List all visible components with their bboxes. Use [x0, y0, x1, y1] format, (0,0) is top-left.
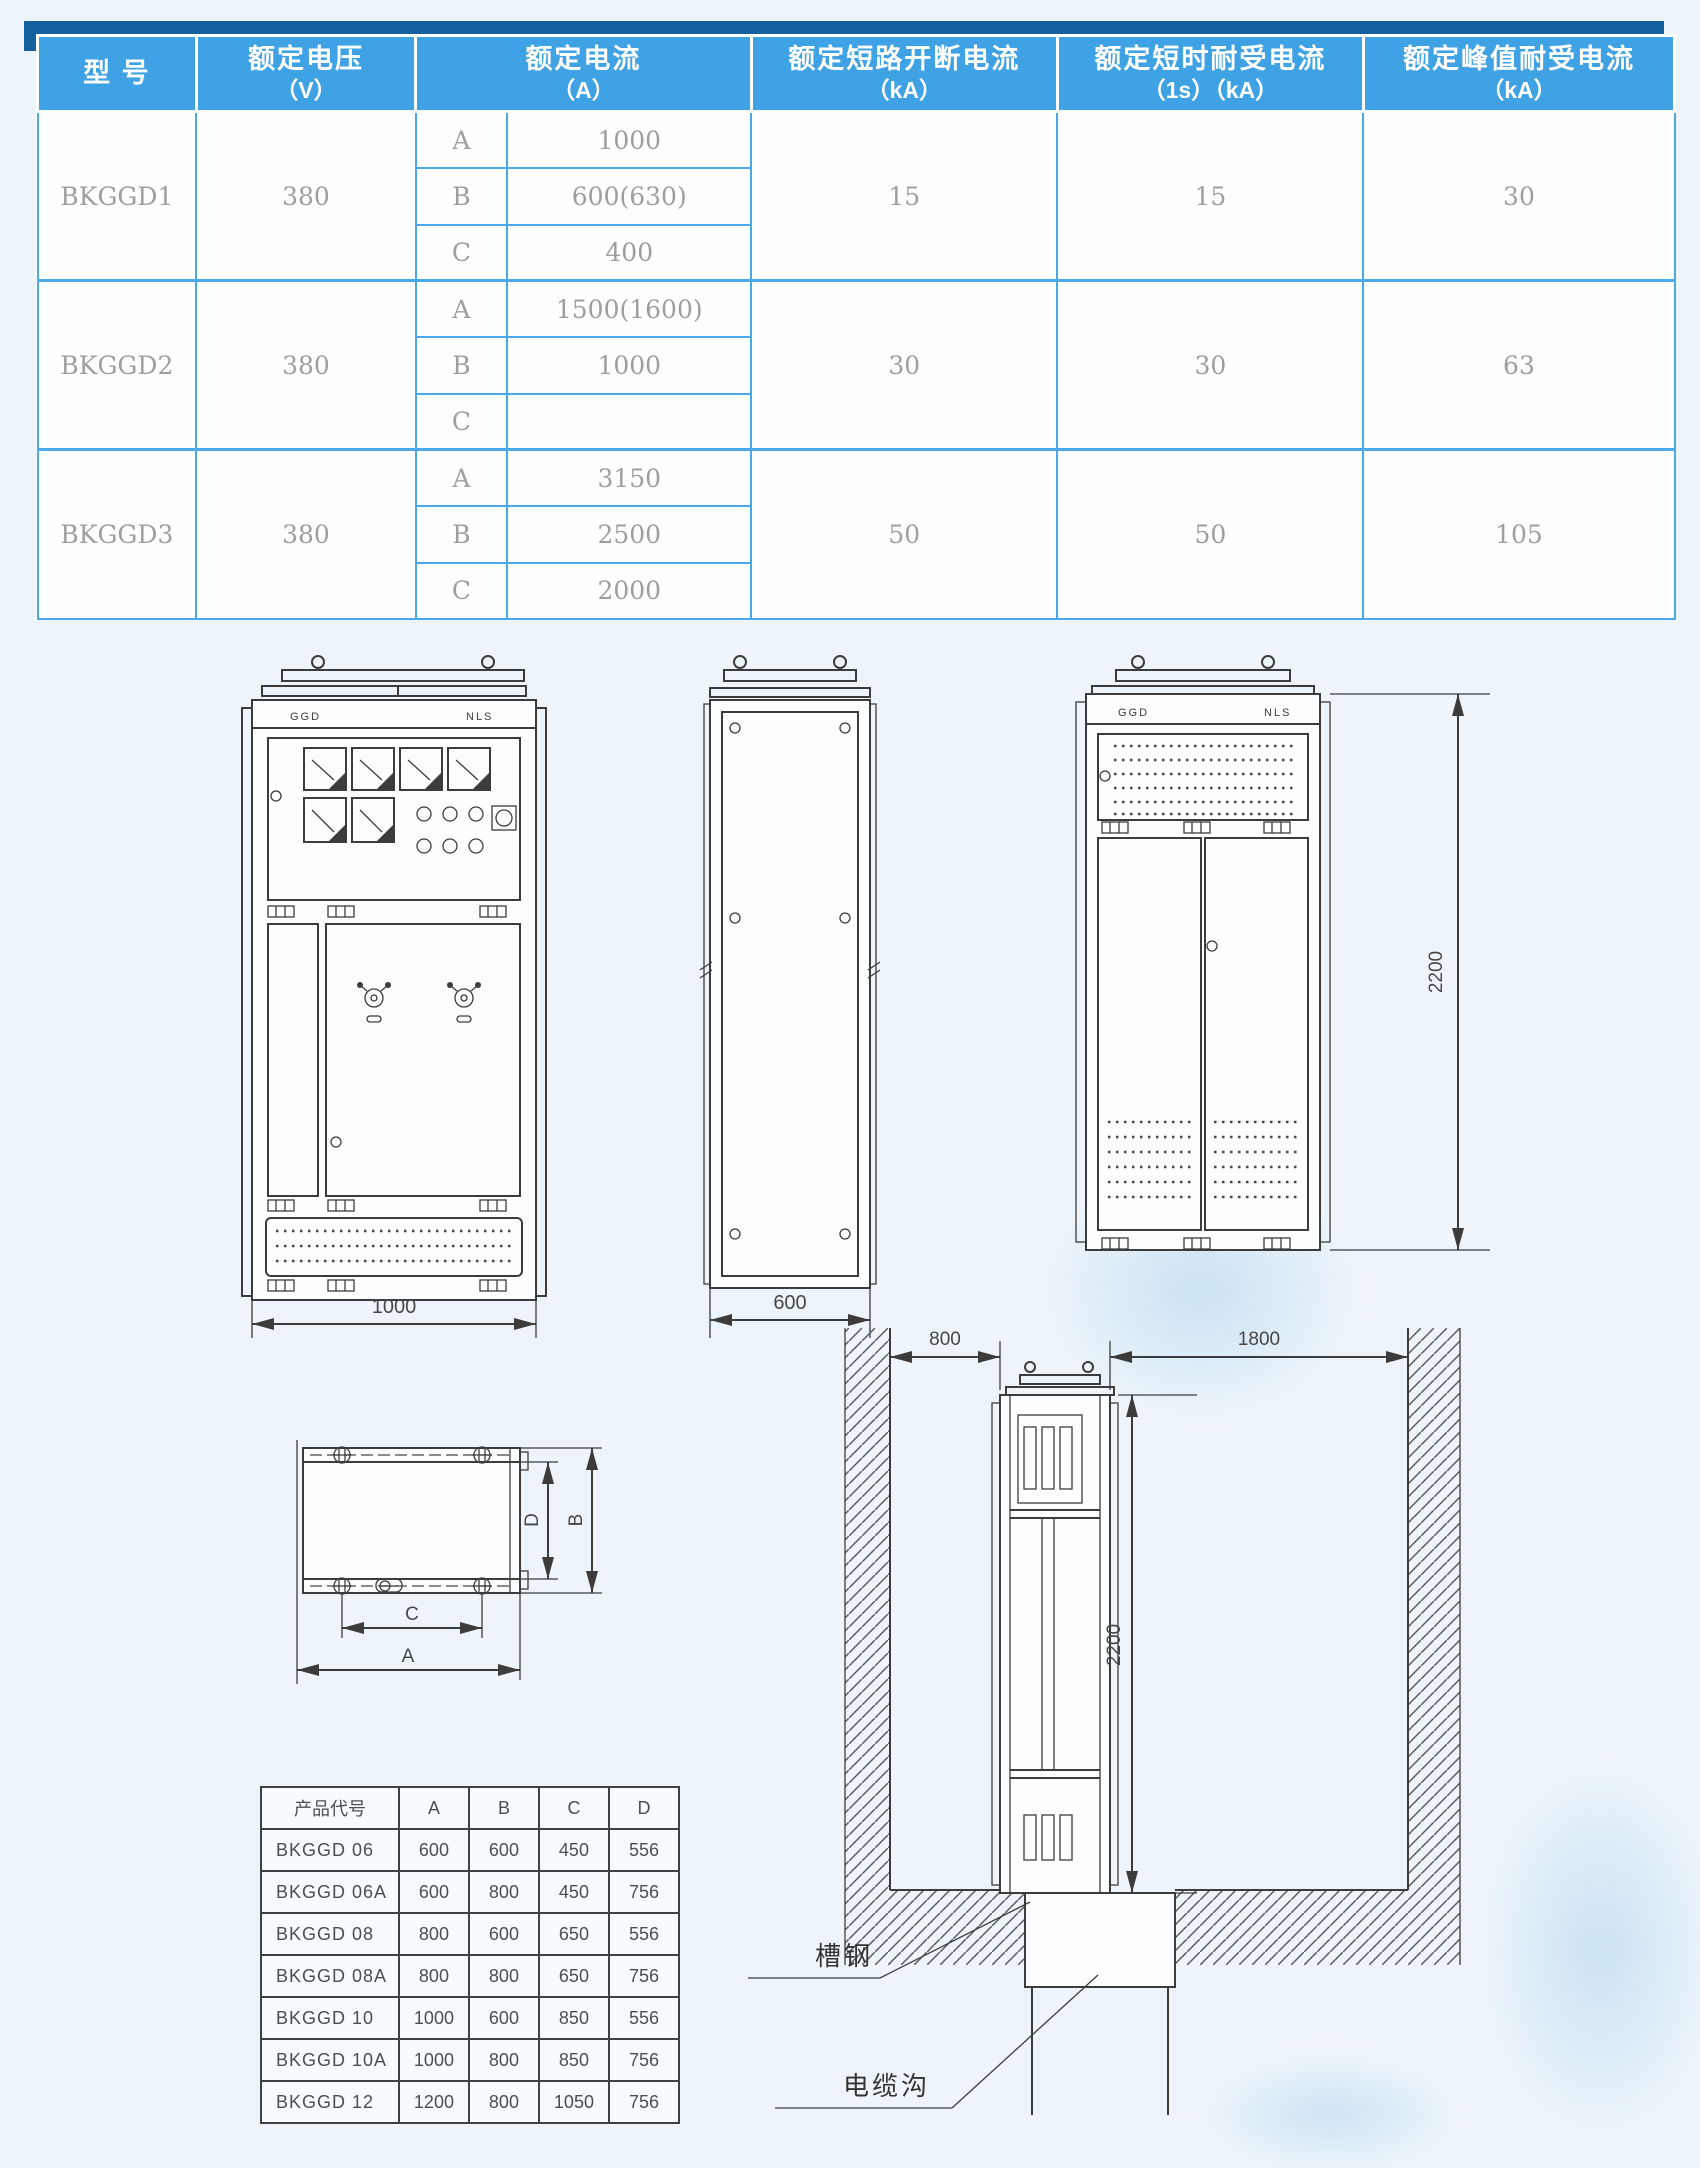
installation-drawing: 800 1800 2200 槽钢 电缆沟: [680, 1315, 1480, 2168]
col-d: D: [609, 1787, 679, 1829]
col-a: A: [399, 1787, 469, 1829]
svg-text:600: 600: [773, 1292, 806, 1314]
plan-dim-d: D: [520, 1462, 558, 1579]
variant-code: A: [416, 112, 508, 168]
variant-current: 600(630): [507, 168, 751, 224]
variant-code: A: [416, 281, 508, 337]
col-peak-current: 额定峰值耐受电流（kA）: [1363, 36, 1674, 112]
lifting-bar: [1092, 656, 1314, 695]
spec-table-section: 型 号 额定电压（V） 额定电流（A） 额定短路开断电流（kA） 额定短时耐受电…: [36, 34, 1676, 620]
col-model: 型 号: [38, 36, 197, 112]
breaking-cell: 50: [751, 450, 1057, 619]
col-model-label: 型 号: [39, 57, 195, 91]
model-cell: BKGGD2: [38, 281, 197, 450]
col-b: B: [469, 1787, 539, 1829]
col-breaking-current: 额定短路开断电流（kA）: [751, 36, 1057, 112]
variant-current: 1000: [507, 112, 751, 168]
table-row: BKGGD 06A600800450756: [261, 1871, 679, 1913]
table-row: BKGGD 1212008001050756: [261, 2081, 679, 2123]
model-cell: BKGGD3: [38, 450, 197, 619]
short-time-cell: 50: [1057, 450, 1363, 619]
variant-current: 1500(1600): [507, 281, 751, 337]
col-c: C: [539, 1787, 609, 1829]
wall-left: [845, 1328, 890, 1965]
table-row: BKGGD 10A1000800850756: [261, 2039, 679, 2081]
breaking-cell: 15: [751, 112, 1057, 281]
meter-icon: [448, 748, 490, 790]
right-clearance-dimension: 1800: [1110, 1329, 1408, 1390]
table-row: BKGGD 06600600450556: [261, 1829, 679, 1871]
spec-table: 型 号 额定电压（V） 额定电流（A） 额定短路开断电流（kA） 额定短时耐受电…: [36, 34, 1676, 620]
peak-cell: 63: [1363, 281, 1674, 450]
col-short-time-current: 额定短时耐受电流（1s）（kA）: [1057, 36, 1363, 112]
variant-code: A: [416, 450, 508, 506]
back-view-drawing: GGD NLS: [1058, 650, 1518, 1300]
meter-icon: [304, 798, 346, 842]
variant-code: B: [416, 168, 508, 224]
dimension-table-section: 产品代号 A B C D BKGGD 06600600450556 BKGGD …: [260, 1786, 680, 2124]
channel-steel-base: [1025, 1893, 1175, 1987]
variant-current: 1000: [507, 337, 751, 393]
dimension-header-row: 产品代号 A B C D: [261, 1787, 679, 1829]
cabinet-label-left: GGD: [1118, 707, 1149, 719]
meter-icon: [304, 748, 346, 790]
variant-current: [507, 394, 751, 450]
svg-text:2200: 2200: [1104, 1624, 1125, 1666]
cabinet-section: [992, 1362, 1118, 1893]
svg-text:A: A: [402, 1646, 415, 1667]
col-current: 额定电流（A）: [416, 36, 752, 112]
table-row: BKGGD3 380 A 3150 50 50 105: [38, 450, 1675, 506]
cable-trench-callout: 电缆沟: [775, 1975, 1098, 2108]
table-row: BKGGD1 380 A 1000 15 15 30: [38, 112, 1675, 168]
cable-trench: [1032, 1987, 1168, 2115]
watermark-blob: [1480, 1760, 1700, 2140]
front-width-dimension: 1000: [252, 1296, 536, 1338]
meter-icon: [352, 798, 394, 842]
voltage-cell: 380: [196, 450, 415, 619]
model-cell: BKGGD1: [38, 112, 197, 281]
meter-icon: [400, 748, 442, 790]
variant-current: 3150: [507, 450, 751, 506]
variant-current: 2000: [507, 563, 751, 619]
variant-code: B: [416, 337, 508, 393]
voltage-cell: 380: [196, 112, 415, 281]
svg-text:C: C: [405, 1604, 419, 1625]
breaking-cell: 30: [751, 281, 1057, 450]
peak-cell: 105: [1363, 450, 1674, 619]
variant-code: C: [416, 394, 508, 450]
back-height-dimension: 2200: [1330, 694, 1490, 1250]
svg-text:1800: 1800: [1238, 1329, 1280, 1350]
cabinet-side-body: [700, 700, 880, 1288]
table-row: BKGGD 101000600850556: [261, 1997, 679, 2039]
table-row: BKGGD 08800600650556: [261, 1913, 679, 1955]
channel-steel-label: 槽钢: [815, 1941, 873, 1971]
col-voltage: 额定电压（V）: [196, 36, 415, 112]
peak-cell: 30: [1363, 112, 1674, 281]
meter-icon: [352, 748, 394, 790]
front-view-drawing: GGD NLS: [238, 648, 550, 1338]
variant-code: C: [416, 563, 508, 619]
svg-text:D: D: [522, 1513, 543, 1527]
svg-text:2200: 2200: [1426, 951, 1447, 993]
plan-dim-c: C: [342, 1593, 482, 1638]
plan-view-drawing: D B C A: [252, 1432, 652, 1702]
short-time-cell: 30: [1057, 281, 1363, 450]
table-row: BKGGD 08A800800650756: [261, 1955, 679, 1997]
plan-body: [303, 1447, 528, 1594]
cabinet-label-left: GGD: [290, 711, 321, 723]
catalog-page: { "spec_table": { "headers": { "model": …: [0, 0, 1700, 2168]
svg-text:B: B: [566, 1514, 587, 1527]
wall-right: [1408, 1328, 1460, 1965]
svg-text:800: 800: [929, 1329, 961, 1350]
short-time-cell: 15: [1057, 112, 1363, 281]
voltage-cell: 380: [196, 281, 415, 450]
svg-text:1000: 1000: [372, 1296, 417, 1318]
variant-code: C: [416, 225, 508, 281]
cabinet-label-right: NLS: [466, 711, 493, 723]
variant-code: B: [416, 506, 508, 562]
dimension-table: 产品代号 A B C D BKGGD 06600600450556 BKGGD …: [260, 1786, 680, 2124]
left-clearance-dimension: 800: [890, 1329, 1000, 1390]
table-row: BKGGD2 380 A 1500(1600) 30 30 63: [38, 281, 1675, 337]
spec-header-row: 型 号 额定电压（V） 额定电流（A） 额定短路开断电流（kA） 额定短时耐受电…: [38, 36, 1675, 112]
side-view-drawing: 600: [688, 648, 892, 1338]
col-product-code: 产品代号: [261, 1787, 399, 1829]
cable-trench-label: 电缆沟: [843, 2071, 930, 2101]
lifting-bar: [710, 656, 870, 697]
cabinet-label-right: NLS: [1264, 707, 1291, 719]
variant-current: 2500: [507, 506, 751, 562]
lifting-bar: [262, 656, 526, 696]
variant-current: 400: [507, 225, 751, 281]
cabinet-back-body: GGD NLS: [1076, 694, 1330, 1250]
